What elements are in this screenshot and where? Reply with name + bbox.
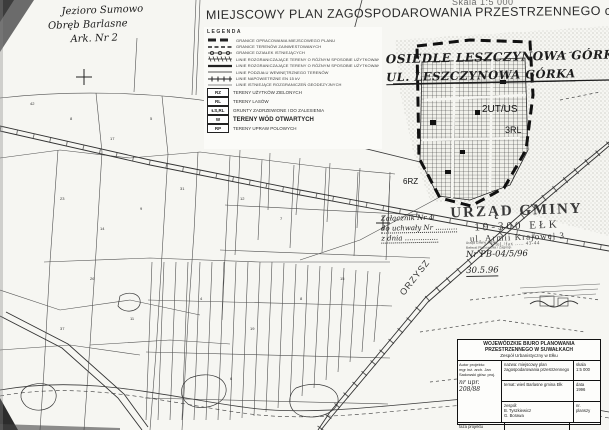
- phase-cell: faza projektu: [458, 423, 505, 430]
- legend-panel: LEGENDA GRANICE OPRACOWANIA MIEJSCOWEGO …: [204, 27, 382, 149]
- stamp-small-date: 30.5.96: [466, 265, 499, 277]
- title-block-table: WOJEWÓDZKIE BIURO PLANOWANIA PRZESTRZENN…: [457, 339, 601, 425]
- date-cell: data 1996: [574, 381, 600, 401]
- map-label-6rz: 6RZ: [403, 177, 418, 186]
- thick-solid-line-icon: [207, 63, 233, 69]
- svg-text:17: 17: [110, 136, 115, 141]
- sheet-no-cell: nr. planszy: [574, 402, 600, 422]
- circle-line-icon: [207, 50, 233, 56]
- svg-text:12: 12: [240, 196, 245, 201]
- thin-solid-line-icon: [207, 69, 233, 75]
- subject-cell: temat: wieś Barlasne gmina Ełk: [502, 381, 574, 401]
- map-label-3rl: 3RL: [505, 125, 522, 135]
- legend-item: LINIE ROZGRANICZAJĄCE TERENY O RÓŻNYM SP…: [207, 63, 379, 69]
- legend-coded-item: RP TERENY UPRAW POLOWYCH: [207, 124, 379, 133]
- scale-cell: skala 1:5 000: [574, 361, 600, 381]
- plain-line-icon: [207, 82, 233, 88]
- zone-code-box: ŁS,RL: [207, 106, 229, 115]
- lake-name: Jezioro Sumowo: [61, 3, 143, 20]
- svg-text:14: 14: [100, 226, 105, 231]
- legend-coded-item: RL TERENY LASÓW: [207, 97, 379, 106]
- legend-coded-item: W TERENY WÓD OTWARTYCH: [207, 115, 379, 124]
- legend-heading: LEGENDA: [207, 29, 379, 35]
- scanned-plan-page: 2UT/US 3RL 6RZ ORZYSZ 42 8 17 5 23 14 9 …: [0, 0, 609, 430]
- title-block-header: WOJEWÓDZKIE BIURO PLANOWANIA PRZESTRZENN…: [458, 340, 600, 361]
- stamp-small: Urząd Gminy w Ełku Referat Planowania i …: [466, 239, 577, 278]
- handwritten-osiedle-annotation: OSIEDLE LESZCZYNOWA GÓRKA UL. LESZCZYNOW…: [386, 48, 607, 86]
- svg-text:26: 26: [90, 276, 95, 281]
- zone-code-box: RZ: [207, 88, 229, 97]
- svg-text:15: 15: [340, 276, 345, 281]
- plan-name-cell: nazwa: miejscowy plan zagospodarowania p…: [502, 361, 574, 381]
- org-name-line3: Zespół Urbanistyczny w Ełku: [458, 353, 600, 359]
- legend-coded-item: ŁS,RL GRUNTY ZADRZEWIONE I DO ZALESIENIA: [207, 106, 379, 115]
- scale-note: Skala 1:5 000: [452, 0, 514, 7]
- zone-code-box: W: [207, 115, 229, 124]
- svg-text:31: 31: [180, 186, 185, 191]
- svg-text:23: 23: [60, 196, 65, 201]
- zone-code-box: RL: [207, 97, 229, 106]
- cross-tick-line-icon: [207, 76, 233, 82]
- hatched-line-icon: [207, 56, 233, 62]
- svg-text:37: 37: [60, 326, 65, 331]
- sheet-number: Ark. Nr 2: [70, 31, 144, 48]
- handwritten-note-topleft: Jezioro Sumowo Obręb Barlasne Ark. Nr 2: [61, 3, 144, 48]
- spacer-cell2: [570, 423, 600, 430]
- author-signature: nr upr. 208/88: [459, 379, 500, 393]
- svg-text:19: 19: [250, 326, 255, 331]
- map-label-2utus: 2UT/US: [482, 104, 518, 115]
- author-cell: Autor projektu: mgr inż. arch. Jan Sadow…: [458, 361, 502, 422]
- legend-coded-item: RZ TERENY UŻYTKÓW ZIELONYCH: [207, 88, 379, 97]
- boundary-dashed-icon: [207, 44, 233, 50]
- legend-item: LINIE ROZGRANICZAJĄCE TERENY O RÓŻNYM SP…: [207, 56, 379, 62]
- boundary-thick-dash-icon: [207, 37, 233, 43]
- team-cell: zespół: B. Tyszkiewicz G. Borawa: [502, 402, 574, 422]
- zone-code-box: RP: [207, 124, 229, 133]
- spacer-cell: [505, 423, 570, 430]
- svg-text:42: 42: [30, 101, 35, 106]
